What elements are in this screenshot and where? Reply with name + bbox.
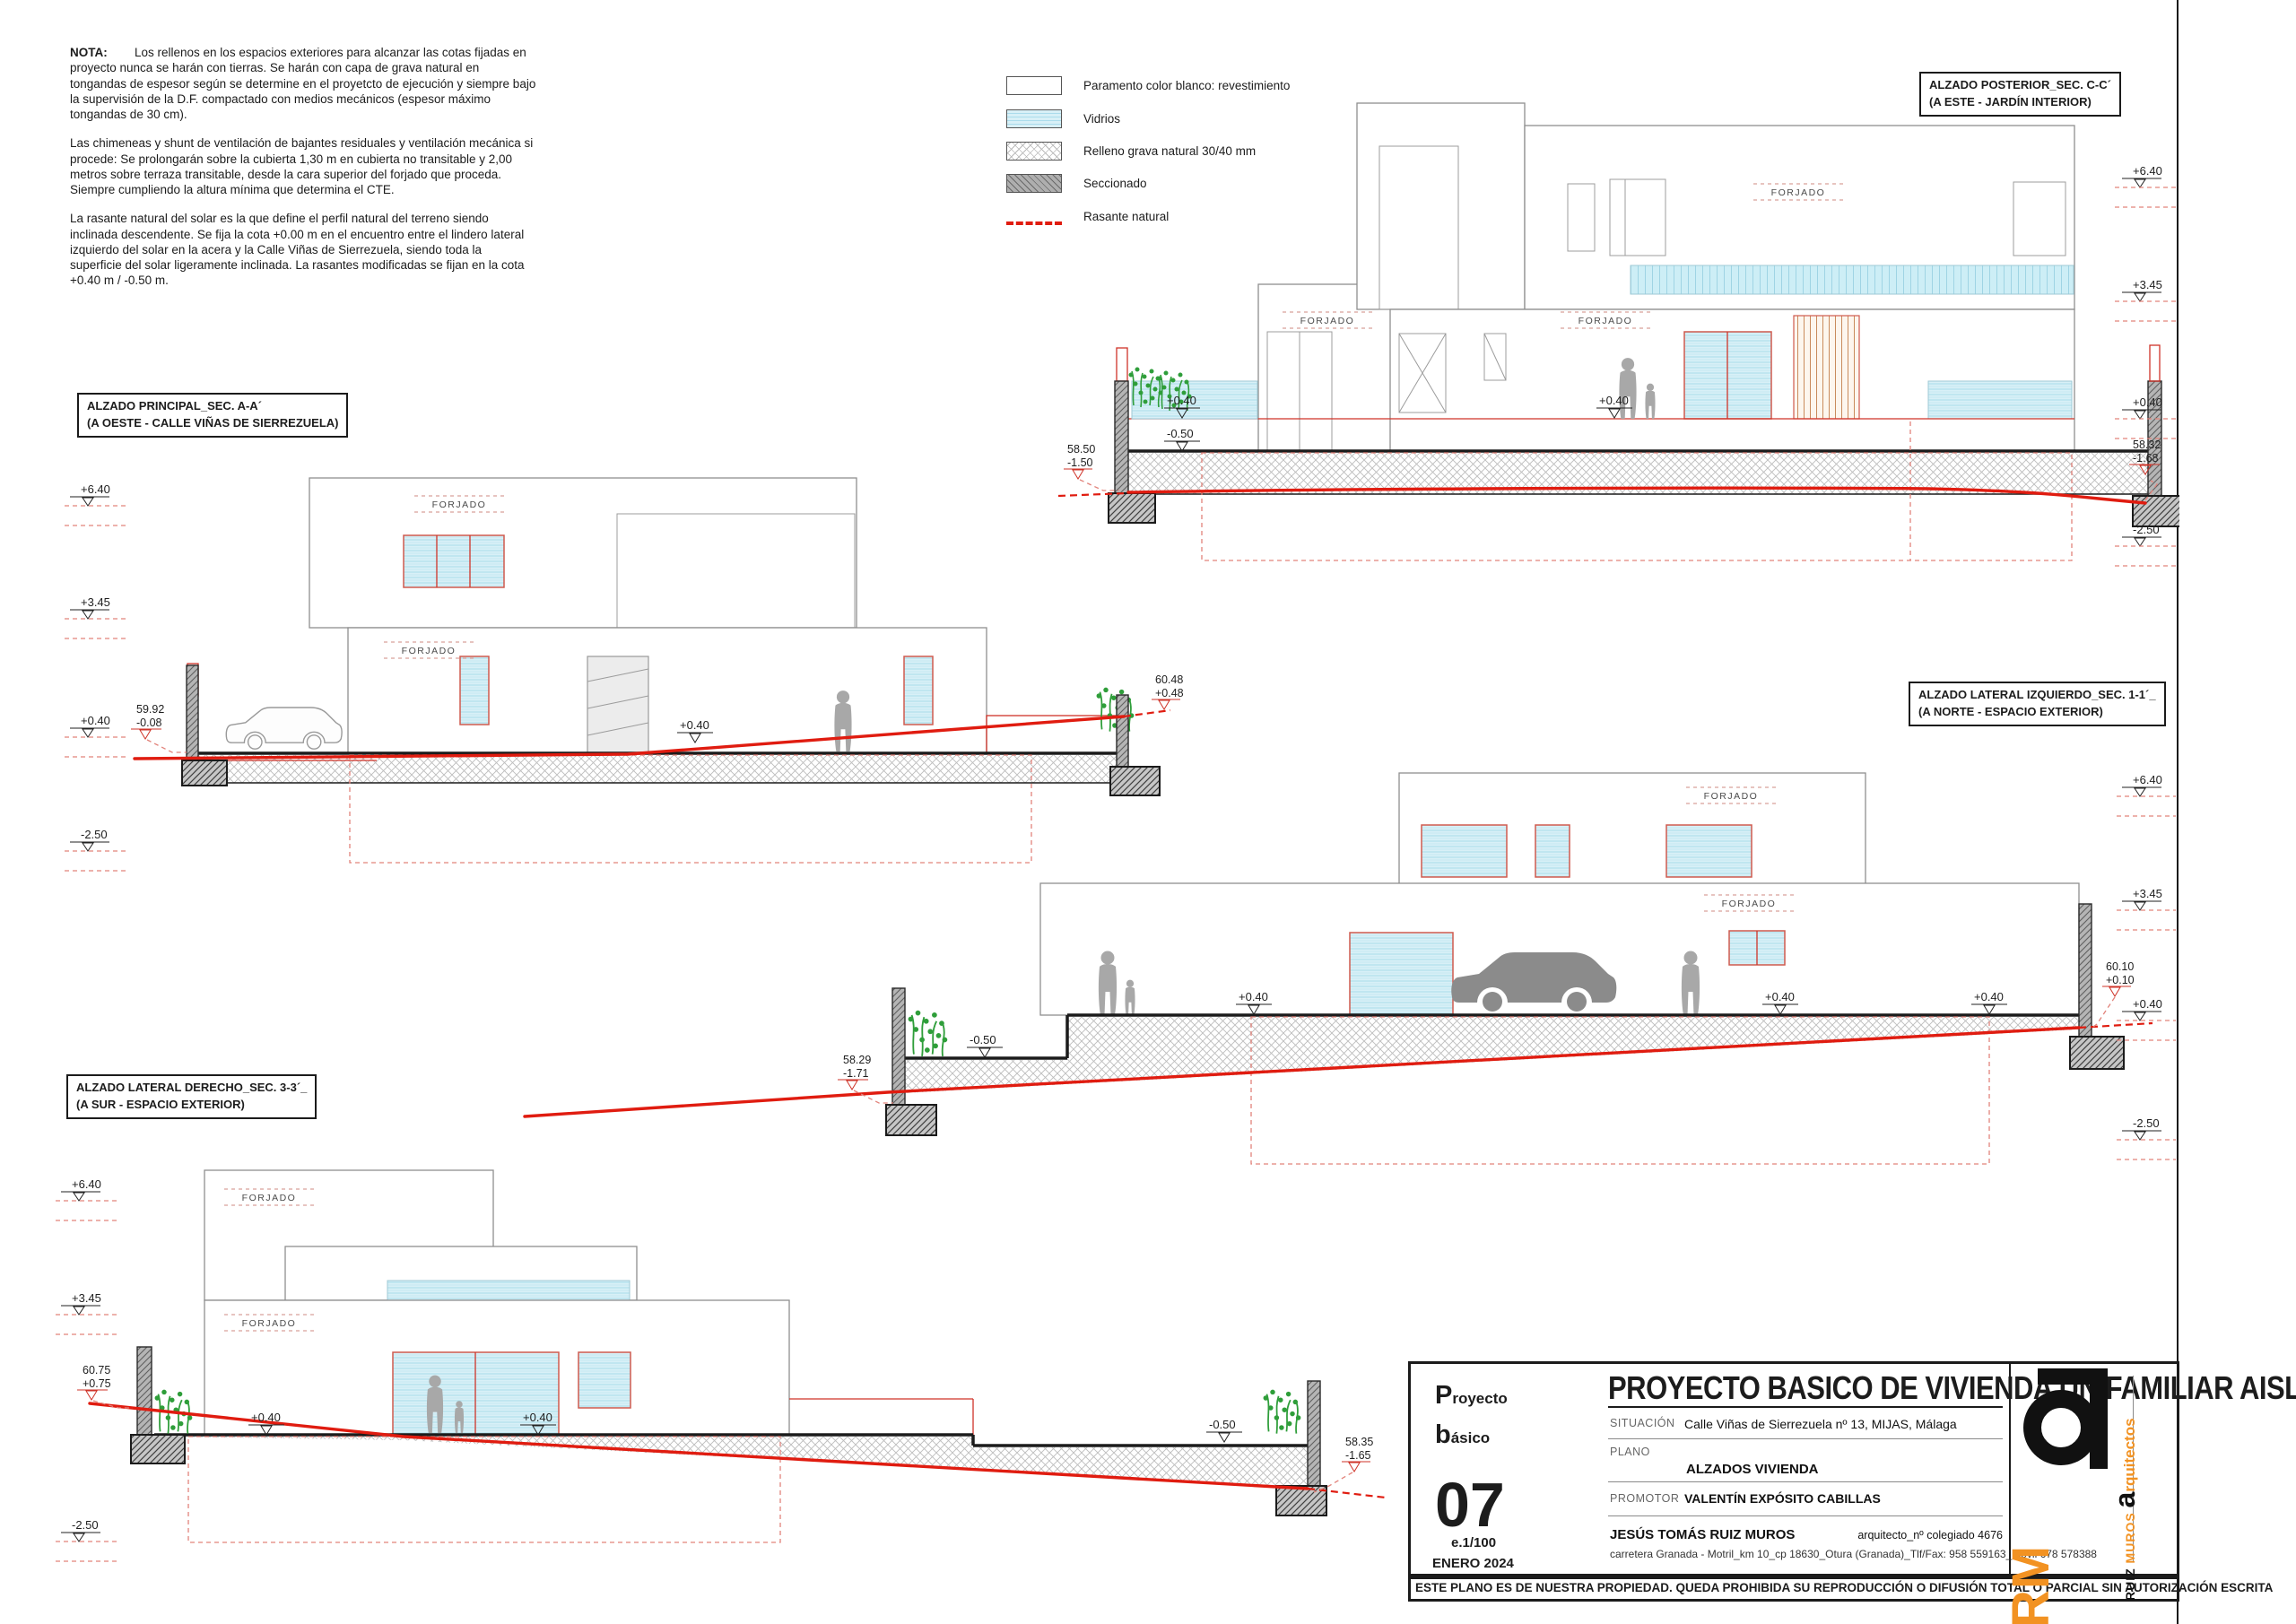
svg-text:-2.50: -2.50 (72, 1518, 99, 1532)
window (904, 656, 933, 725)
logo-rm-text: RM (2001, 1545, 2061, 1624)
svg-text:+3.45: +3.45 (2133, 278, 2162, 291)
plano-value: ALZADOS VIVIENDA (1686, 1462, 1819, 1477)
label-alzado-lateral-derecho: ALZADO LATERAL DERECHO_SEC. 3-3´_(A SUR … (66, 1074, 317, 1119)
cota-marker: -0.50 (1206, 1418, 1242, 1442)
alzado-lateral-izquierdo-drawing: FORJADO FORJADO +0.40 (502, 758, 2188, 1188)
window (460, 656, 489, 725)
window (1422, 825, 1507, 877)
principal-volumes (309, 478, 987, 753)
svg-text:-2.50: -2.50 (81, 828, 108, 841)
scale-mark: +0.40 (2117, 997, 2176, 1040)
svg-text:59.92: 59.92 (136, 703, 164, 716)
svg-text:+3.45: +3.45 (81, 595, 110, 609)
svg-text:-2.50: -2.50 (2133, 1116, 2160, 1130)
cota-marker: -0.50 (1164, 427, 1200, 451)
svg-text:+0.40: +0.40 (81, 714, 110, 727)
scale-mark: -2.50 (2115, 523, 2176, 566)
scale-mark: -2.50 (56, 1518, 117, 1561)
svg-text:+6.40: +6.40 (72, 1177, 101, 1191)
svg-text:FORJADO: FORJADO (432, 499, 487, 510)
sheet-scale: e.1/100 (1451, 1535, 1496, 1550)
svg-text:+0.40: +0.40 (1974, 990, 2004, 1003)
scale-mark: +6.40 (56, 1177, 117, 1220)
label-alzado-lateral-izquierdo: ALZADO LATERAL IZQUIERDO_SEC. 1-1´_(A NO… (1909, 682, 2166, 726)
svg-text:58.50: 58.50 (1067, 443, 1095, 456)
svg-text:+0.40: +0.40 (1765, 990, 1795, 1003)
svg-text:+0.40: +0.40 (2133, 395, 2162, 409)
svg-text:+0.40: +0.40 (680, 718, 709, 732)
svg-text:FORJADO: FORJADO (1771, 187, 1826, 198)
posterior-volumes (1258, 103, 2074, 451)
garage-door (1350, 933, 1453, 1015)
sheet-number: 07 (1435, 1469, 1505, 1541)
svg-text:-0.08: -0.08 (136, 716, 162, 729)
svg-text:58.32: 58.32 (2133, 439, 2161, 451)
window (1535, 825, 1570, 877)
divider (1608, 1438, 2003, 1439)
svg-text:-1.71: -1.71 (843, 1067, 869, 1080)
divider (1608, 1515, 2003, 1516)
kicker: Proyecto básico (1435, 1376, 1508, 1455)
sheet-date: ENERO 2024 (1432, 1556, 1514, 1571)
level-label-right: 60.48 +0.48 (1152, 673, 1184, 709)
derecho-volumes (204, 1170, 789, 1435)
label-alzado-principal: ALZADO PRINCIPAL_SEC. A-A´(A OESTE - CAL… (77, 393, 348, 438)
svg-text:FORJADO: FORJADO (242, 1193, 297, 1203)
svg-text:+0.40: +0.40 (2133, 997, 2162, 1011)
glass-railing (1631, 265, 2074, 294)
scale-mark: +3.45 (65, 595, 126, 638)
svg-text:58.35: 58.35 (1345, 1436, 1373, 1448)
architect-info: arquitecto_nº colegiado 4676 (1857, 1529, 2003, 1541)
svg-text:-1.68: -1.68 (2133, 452, 2159, 465)
cota-marker: -0.50 (967, 1033, 1003, 1057)
svg-text:FORJADO: FORJADO (1722, 899, 1777, 909)
svg-text:+6.40: +6.40 (2133, 773, 2162, 786)
scale-mark: +3.45 (56, 1291, 117, 1334)
upper-window (404, 535, 504, 587)
drawing-sheet: NOTA:Los rellenos en los espacios exteri… (0, 0, 2296, 1624)
svg-text:FORJADO: FORJADO (402, 646, 457, 656)
scale-mark: +0.40 (2115, 395, 2176, 439)
svg-text:58.29: 58.29 (843, 1054, 871, 1066)
divider (1608, 1481, 2003, 1482)
svg-text:-0.50: -0.50 (1209, 1418, 1236, 1431)
svg-text:-1.65: -1.65 (1345, 1449, 1371, 1462)
svg-text:+3.45: +3.45 (2133, 887, 2162, 900)
note-paragraph: Las chimeneas y shunt de ventilación de … (70, 135, 536, 197)
scale-mark: -2.50 (2117, 1116, 2176, 1159)
svg-text:+0.40: +0.40 (251, 1411, 281, 1424)
logo-a-icon (2020, 1368, 2120, 1472)
svg-text:+0.40: +0.40 (1167, 394, 1196, 407)
notes-block: NOTA:Los rellenos en los espacios exteri… (70, 45, 536, 302)
svg-text:+6.40: +6.40 (81, 482, 110, 496)
svg-text:+0.75: +0.75 (83, 1377, 111, 1390)
glass-railing (387, 1281, 630, 1300)
svg-text:+3.45: +3.45 (72, 1291, 101, 1305)
svg-text:60.48: 60.48 (1155, 673, 1183, 686)
scale-mark: +0.40 (65, 714, 126, 757)
wood-slat-screen (1794, 316, 1859, 419)
plant (909, 1012, 946, 1056)
promotor-value: VALENTÍN EXPÓSITO CABILLAS (1684, 1491, 1881, 1506)
level-label-left: 60.75 +0.75 (77, 1364, 133, 1408)
svg-text:FORJADO: FORJADO (242, 1318, 297, 1329)
window (578, 1352, 631, 1408)
title-underline (1608, 1406, 2003, 1408)
svg-text:+0.10: +0.10 (2106, 974, 2135, 986)
project-title: PROYECTO BASICO DE VIVIENDA UNIFAMILIAR … (1608, 1369, 2296, 1407)
svg-text:-0.50: -0.50 (970, 1033, 996, 1046)
svg-text:+0.48: +0.48 (1155, 687, 1184, 699)
level-label-right: 60.10 +0.10 (2090, 960, 2135, 1029)
svg-text:FORJADO: FORJADO (1704, 791, 1759, 802)
note-paragraph: La rasante natural del solar es la que d… (70, 211, 536, 288)
car-outline (226, 708, 342, 749)
logo-firm-text: RUIZ MUROS arquitectos (2109, 1418, 2142, 1601)
scale-mark: +3.45 (2117, 887, 2176, 930)
level-label-right: 58.35 -1.65 (1314, 1436, 1373, 1492)
scale-mark: +6.40 (2117, 773, 2176, 816)
scale-mark: +3.45 (2115, 278, 2176, 321)
svg-text:+0.40: +0.40 (523, 1411, 552, 1424)
svg-text:60.75: 60.75 (83, 1364, 110, 1376)
note-label: NOTA: (70, 45, 135, 60)
plant (1264, 1391, 1300, 1434)
alzado-lateral-derecho-drawing: FORJADO FORJADO +0.40 (36, 1148, 1435, 1596)
promotor-label: PROMOTOR (1610, 1492, 1679, 1505)
architect-name: JESÚS TOMÁS RUIZ MUROS (1610, 1527, 1795, 1542)
note-paragraph: NOTA:Los rellenos en los espacios exteri… (70, 45, 536, 122)
situacion-value: Calle Viñas de Sierrezuela nº 13, MIJAS,… (1684, 1417, 1957, 1431)
svg-text:FORJADO: FORJADO (1578, 316, 1633, 326)
svg-text:-0.50: -0.50 (1167, 427, 1194, 440)
window (1666, 825, 1752, 877)
scale-mark: +6.40 (65, 482, 126, 525)
svg-text:60.10: 60.10 (2106, 960, 2134, 973)
svg-text:+6.40: +6.40 (2133, 164, 2162, 178)
situacion-label: SITUACIÓN (1610, 1417, 1675, 1429)
svg-text:+0.40: +0.40 (1239, 990, 1268, 1003)
scale-mark: -2.50 (65, 828, 126, 871)
level-label-left: 59.92 -0.08 (131, 703, 187, 752)
svg-text:FORJADO: FORJADO (1300, 316, 1355, 326)
scale-mark: +6.40 (2115, 164, 2176, 207)
plano-label: PLANO (1610, 1446, 1650, 1458)
svg-text:-2.50: -2.50 (2133, 523, 2160, 536)
svg-text:+0.40: +0.40 (1599, 394, 1629, 407)
copyright-text: ESTE PLANO ES DE NUESTRA PROPIEDAD. QUED… (1415, 1581, 2273, 1594)
